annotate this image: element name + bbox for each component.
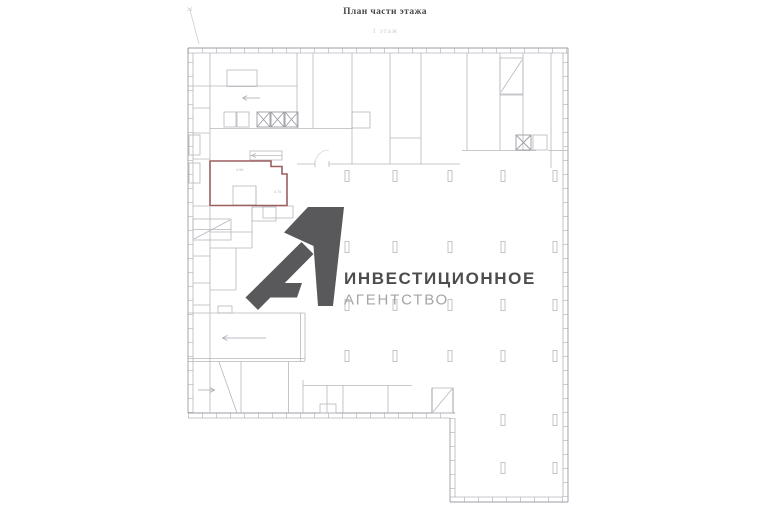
column xyxy=(501,242,505,253)
stairs-icon xyxy=(189,135,200,155)
column xyxy=(393,351,397,362)
arrow-left-icon xyxy=(243,96,260,101)
arrow-left-icon xyxy=(223,335,267,340)
arrow-right-icon xyxy=(198,388,215,393)
column xyxy=(553,415,557,426)
column xyxy=(501,300,505,311)
elevator-icon xyxy=(271,112,284,127)
stairs-icon xyxy=(432,388,453,413)
stairs-icon xyxy=(533,135,547,150)
elevator-bank xyxy=(224,112,298,127)
bottom-left-rooms xyxy=(188,306,412,413)
ramp-line xyxy=(219,362,237,413)
door-arc xyxy=(315,150,329,164)
stairs-icon xyxy=(250,151,282,160)
highlighted-room-outline xyxy=(210,161,287,206)
service-room xyxy=(224,112,236,127)
column xyxy=(393,242,397,253)
floor-plan: 4.96 4.76 xyxy=(0,0,770,510)
logo-text-primary: ИНВЕСТИЦИОННОЕ xyxy=(344,269,536,288)
logo-text-secondary: АГЕНТСТВО xyxy=(344,292,449,309)
top-room-walls xyxy=(188,53,568,413)
column xyxy=(345,171,349,182)
elevator-icon xyxy=(285,112,298,127)
corridor-arrows xyxy=(198,96,266,393)
column xyxy=(448,171,452,182)
highlighted-room: 4.96 4.76 xyxy=(210,161,293,218)
room-partition xyxy=(233,186,256,205)
dimension-label: 4.96 xyxy=(236,168,243,172)
column xyxy=(448,242,452,253)
column xyxy=(501,415,505,426)
leader-line xyxy=(188,8,200,45)
column xyxy=(553,351,557,362)
column xyxy=(393,171,397,182)
elevator-icon xyxy=(516,135,531,150)
column xyxy=(501,171,505,182)
service-room xyxy=(237,112,249,127)
column-grid xyxy=(345,171,557,474)
dimension-label: 4.76 xyxy=(274,190,281,194)
watermark-logo: ИНВЕСТИЦИОННОЕ АГЕНТСТВО xyxy=(246,207,536,310)
column xyxy=(345,242,349,253)
floor-plan-page: План части этажа 1 этаж xyxy=(0,0,770,510)
column xyxy=(553,300,557,311)
room-partition xyxy=(263,206,293,218)
column xyxy=(501,463,505,474)
column xyxy=(553,242,557,253)
column xyxy=(501,351,505,362)
column xyxy=(553,171,557,182)
elevator-icon xyxy=(257,112,270,127)
stairs-icon xyxy=(189,163,200,183)
column xyxy=(448,351,452,362)
column xyxy=(345,351,349,362)
a1-logo-mark xyxy=(246,207,345,310)
column xyxy=(553,463,557,474)
stairs-icon xyxy=(500,58,523,95)
stairs-icon xyxy=(193,219,231,240)
